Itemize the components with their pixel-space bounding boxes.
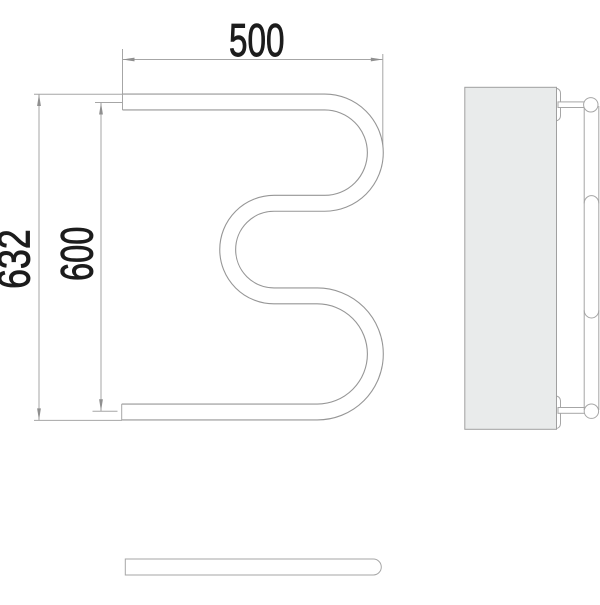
svg-text:632: 632 — [0, 229, 39, 289]
svg-text:600: 600 — [52, 227, 102, 281]
svg-text:500: 500 — [229, 14, 284, 67]
